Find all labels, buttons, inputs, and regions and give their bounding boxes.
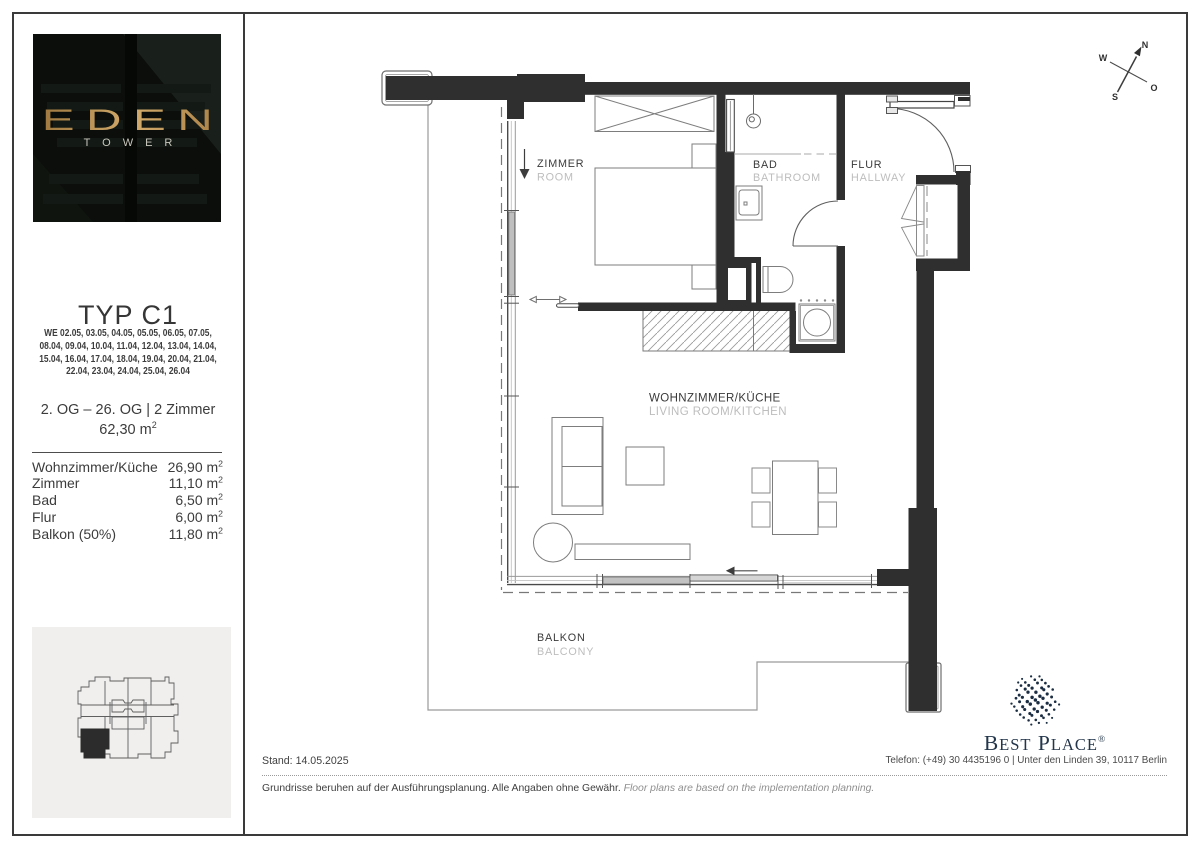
svg-text:ZIMMER: ZIMMER (537, 158, 584, 170)
svg-text:BALCONY: BALCONY (537, 646, 594, 658)
svg-text:LIVING ROOM/KITCHEN: LIVING ROOM/KITCHEN (649, 406, 787, 418)
svg-text:WOHNZIMMER/KÜCHE: WOHNZIMMER/KÜCHE (649, 393, 781, 405)
svg-text:W: W (1099, 53, 1108, 63)
svg-text:N: N (1142, 40, 1149, 50)
svg-text:HALLWAY: HALLWAY (851, 172, 906, 184)
svg-text:BALKON: BALKON (537, 632, 586, 644)
svg-text:FLUR: FLUR (851, 159, 882, 171)
svg-text:O: O (1150, 83, 1157, 93)
svg-text:ROOM: ROOM (537, 172, 574, 184)
svg-text:S: S (1112, 92, 1118, 102)
svg-text:BATHROOM: BATHROOM (753, 172, 821, 184)
svg-text:BAD: BAD (753, 159, 778, 171)
